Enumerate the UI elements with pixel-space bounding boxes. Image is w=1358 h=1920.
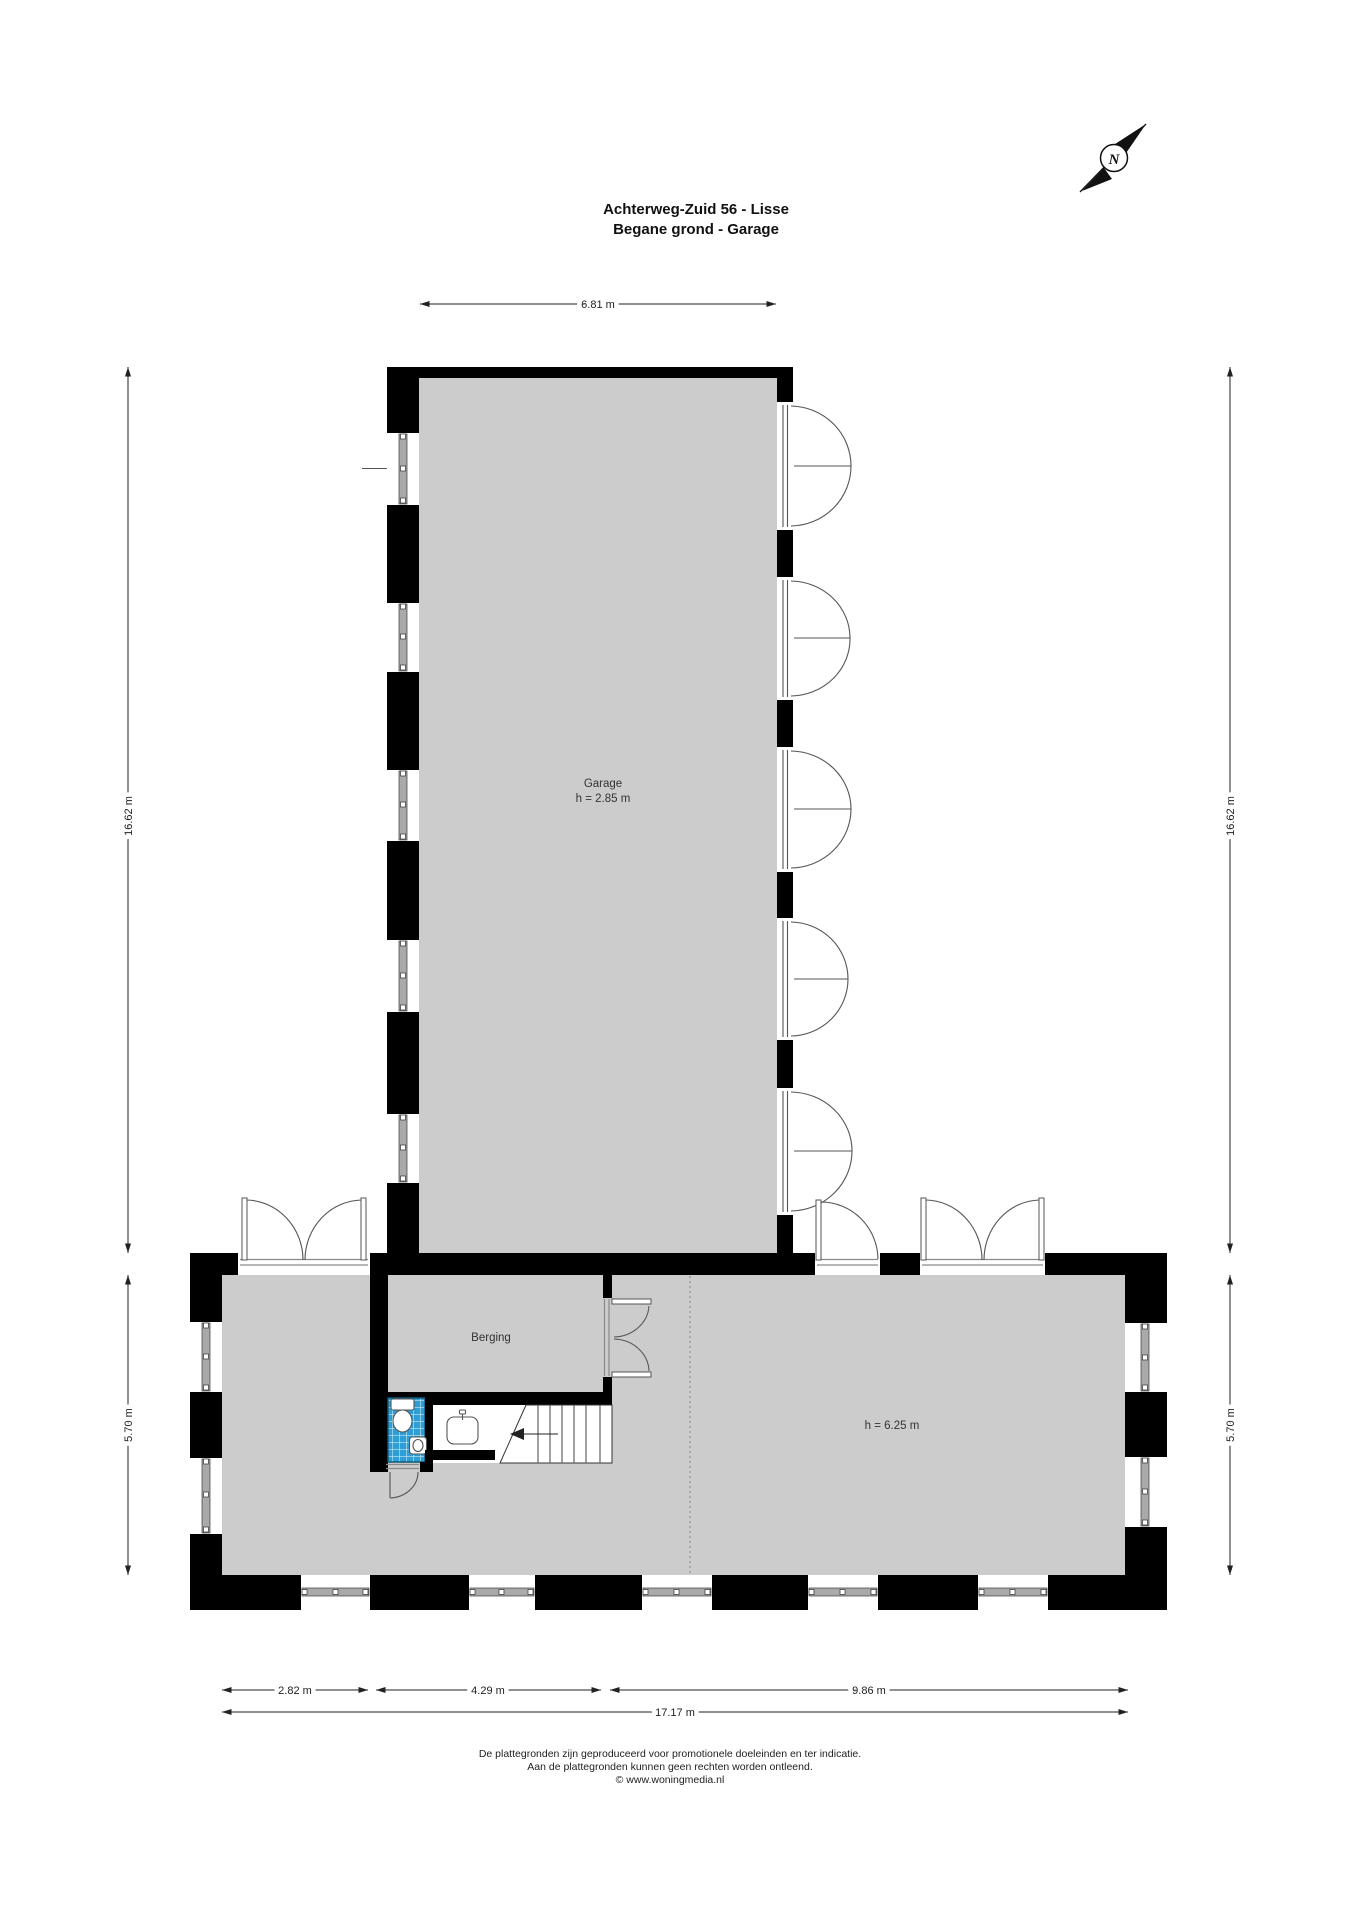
- floorplan-drawing: Garage h = 2.85 m Berging h = 6.25 m 6.8…: [0, 0, 1358, 1920]
- dim-right-lower: 5.70 m: [1225, 1408, 1237, 1442]
- dim-bottom-total: 17.17 m: [655, 1707, 695, 1719]
- dim-bottom-2: 4.29 m: [471, 1685, 505, 1697]
- dim-left-lower: 5.70 m: [123, 1408, 135, 1442]
- junction-wall: [190, 1253, 1167, 1275]
- main-hall-height-label: h = 6.25 m: [865, 1420, 920, 1432]
- left-entrance-double-doors: [242, 1198, 366, 1260]
- garage-height-label: h = 2.85 m: [576, 793, 631, 805]
- right-entrance-double-doors: [921, 1198, 1044, 1260]
- courtyard-single-door: [816, 1200, 878, 1260]
- floorplan-page: Achterweg-Zuid 56 - Lisse Begane grond -…: [0, 0, 1358, 1920]
- garage-room-label: Garage: [584, 778, 622, 790]
- footer-copyright: © www.woningmedia.nl: [616, 1774, 725, 1786]
- dim-left-upper: 16.62 m: [123, 796, 135, 836]
- corner-basin-icon: [410, 1437, 427, 1454]
- dim-top-width: 6.81 m: [581, 299, 615, 311]
- dim-bottom-1: 2.82 m: [278, 1685, 312, 1697]
- compass-north-letter: N: [1108, 152, 1121, 168]
- footer-disclaimer-line2: Aan de plattegronden kunnen geen rechten…: [527, 1761, 812, 1773]
- dim-right-upper: 16.62 m: [1225, 796, 1237, 836]
- toilet-icon: [391, 1399, 414, 1432]
- footer-disclaimer-line1: De plattegronden zijn geproduceerd voor …: [479, 1748, 861, 1760]
- compass-north-icon: N: [1080, 124, 1146, 192]
- garage-right-doors: [777, 402, 852, 1215]
- garage-floor: [419, 378, 777, 1275]
- lower-wing-floor: [222, 1275, 1125, 1575]
- dim-bottom-3: 9.86 m: [852, 1685, 886, 1697]
- floor-areas: [222, 378, 1125, 1575]
- berging-room-label: Berging: [471, 1332, 511, 1344]
